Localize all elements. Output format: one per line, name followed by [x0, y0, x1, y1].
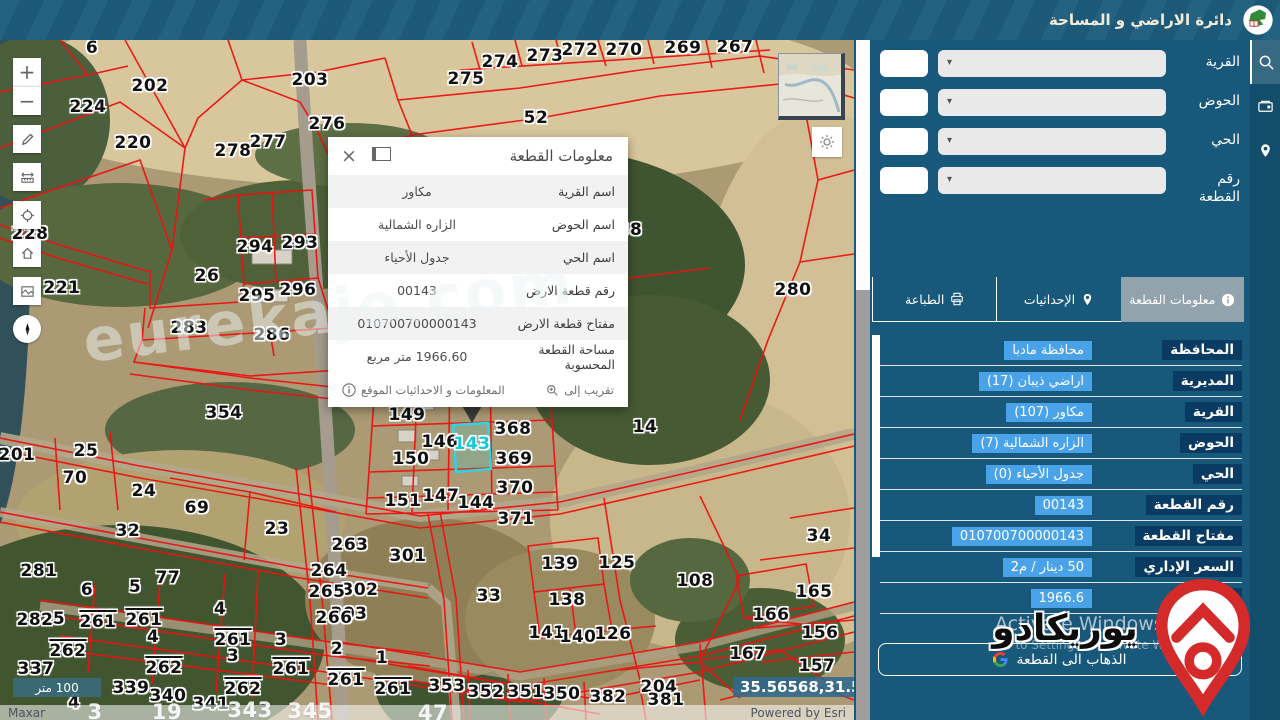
parcel-number-label: رقم القطعة [1176, 167, 1240, 206]
details-row: المساحة1966.6 [880, 583, 1242, 614]
zoom-to-icon [546, 384, 559, 397]
popup-row-value: 1966.60 متر مربع [328, 349, 506, 364]
parcel-info-popup: معلومات القطعة × اسم القريةمكاوراسم الحو… [328, 137, 628, 407]
basin-search-row: الحوض▾ [870, 89, 1250, 116]
tab-parcel-info[interactable]: معلومات القطعة [1121, 277, 1244, 322]
popup-footer: تقريب إلى المعلومات و الاحداثيات الموقع [328, 373, 628, 407]
map-toolbar: +− [13, 58, 41, 343]
popup-row: رقم قطعة الارض00143 [328, 274, 628, 307]
scale-bar: 100 متر [13, 678, 101, 697]
popup-row-label: مساحة القطعة المحسوبة [506, 342, 628, 372]
details-row: المحافظةمحافظة مادبا [880, 335, 1242, 366]
side-panel: القرية▾الحوض▾الحي▾رقم القطعة▾ معلومات ال… [870, 40, 1250, 720]
activate-windows-watermark: Activate Windows [995, 613, 1164, 635]
village-dropdown[interactable]: ▾ [938, 50, 1166, 77]
details-value: 50 دينار / م2 [1003, 558, 1092, 577]
details-row: مفتاح القطعة010700700000143 [880, 521, 1242, 552]
measure-button[interactable] [13, 163, 41, 191]
district-input[interactable] [880, 128, 928, 155]
details-label: القرية [1185, 402, 1242, 422]
details-label: الحي [1193, 464, 1242, 484]
popup-row: اسم الحوضالزاره الشمالية [328, 208, 628, 241]
details-row: الحوضالزاره الشمالية (7) [880, 428, 1242, 459]
details-value: محافظة مادبا [1004, 341, 1092, 360]
district-search-row: الحي▾ [870, 128, 1250, 155]
tab-label: الإحداثيات [1024, 292, 1075, 307]
popup-row-label: اسم القرية [506, 184, 628, 199]
details-value: 010700700000143 [952, 527, 1092, 546]
tab-label: معلومات القطعة [1129, 292, 1215, 307]
layers-card-icon[interactable] [1250, 84, 1280, 128]
zoom-in-button[interactable]: + [13, 58, 41, 86]
go-to-parcel-label: الذهاب الى القطعة [1016, 652, 1126, 668]
popup-row: مساحة القطعة المحسوبة1966.60 متر مربع [328, 340, 628, 373]
details-label: السعر الإداري [1135, 557, 1242, 577]
popup-row-label: مفتاح قطعة الارض [506, 316, 628, 331]
popup-row-value: 010700700000143 [328, 316, 506, 331]
district-dropdown[interactable]: ▾ [938, 128, 1166, 155]
details-row: المديريةاراضي ذيبان (17) [880, 366, 1242, 397]
zoom-to-label: تقريب إلى [564, 383, 614, 397]
activate-windows-watermark-line2: Go to Settings to activate Windows. [995, 638, 1210, 652]
popup-row-value: مكاور [328, 184, 506, 199]
attribution-esri: Powered by Esri [751, 706, 846, 720]
details-label: مفتاح القطعة [1135, 526, 1242, 546]
popup-row: اسم الحيجدول الأحياء [328, 241, 628, 274]
popup-attribute-table: اسم القريةمكاوراسم الحوضالزاره الشماليةا… [328, 175, 628, 373]
district-label: الحي [1176, 128, 1240, 150]
parcel-number-dropdown[interactable]: ▾ [938, 167, 1166, 194]
chevron-down-icon: ▾ [947, 57, 952, 68]
top-bar: دائرة الاراضي و المساحة [0, 0, 1280, 40]
details-value: جدول الأحياء (0) [986, 465, 1092, 484]
tab-print[interactable]: الطباعة [872, 277, 996, 322]
popup-row-value: 00143 [328, 283, 506, 298]
app-root: دائرة الاراضي و المساحة [0, 0, 1280, 720]
coordinates-icon [1081, 293, 1094, 306]
chevron-down-icon: ▾ [947, 96, 952, 107]
village-label: القرية [1176, 50, 1240, 72]
printer-icon [950, 292, 964, 306]
google-icon [993, 652, 1008, 667]
parcel-number-search-row: رقم القطعة▾ [870, 167, 1250, 206]
basin-dropdown[interactable]: ▾ [938, 89, 1166, 116]
locate-button[interactable] [13, 201, 41, 229]
details-row: الحيجدول الأحياء (0) [880, 459, 1242, 490]
chevron-down-icon: ▾ [947, 135, 952, 146]
details-label: المحافظة [1162, 340, 1242, 360]
home-button[interactable] [13, 239, 41, 267]
details-value: اراضي ذيبان (17) [979, 372, 1092, 391]
details-label: الحوض [1180, 433, 1242, 453]
details-label: رقم القطعة [1146, 495, 1242, 515]
info-coordinates-label: المعلومات و الاحداثيات الموقع [361, 383, 505, 397]
zoom-to-link[interactable]: تقريب إلى [546, 383, 614, 397]
info-coordinates-link[interactable]: المعلومات و الاحداثيات الموقع [342, 383, 505, 397]
info-icon [1221, 293, 1235, 307]
popup-title: معلومات القطعة [510, 147, 613, 165]
compass-button[interactable] [13, 315, 41, 343]
tab-label: الطباعة [905, 292, 944, 307]
parcel-search-form: القرية▾الحوض▾الحي▾رقم القطعة▾ [870, 50, 1250, 218]
details-value: 00143 [1035, 496, 1092, 515]
chevron-down-icon: ▾ [947, 174, 952, 185]
app-title: دائرة الاراضي و المساحة [1049, 11, 1232, 29]
popup-close-icon[interactable]: × [341, 147, 357, 165]
department-logo-icon [1242, 4, 1274, 36]
scrollbar-thumb[interactable] [856, 40, 870, 290]
search-tool-icon[interactable] [1250, 40, 1280, 84]
details-scrollbar[interactable] [872, 335, 880, 557]
basemap-button[interactable] [13, 277, 41, 305]
panel-tabs: معلومات القطعةالإحداثياتالطباعة [872, 277, 1244, 322]
details-row: القريةمكاور (107) [880, 397, 1242, 428]
popup-row-value: جدول الأحياء [328, 250, 506, 265]
zoom-out-button[interactable]: − [13, 86, 41, 115]
village-search-row: القرية▾ [870, 50, 1250, 77]
coordinates-readout: 35.56568,31.59776 [733, 677, 854, 697]
popup-row-value: الزاره الشمالية [328, 217, 506, 232]
popup-row-label: اسم الحي [506, 250, 628, 265]
popup-row-label: اسم الحوض [506, 217, 628, 232]
tab-coordinates[interactable]: الإحداثيات [996, 277, 1120, 322]
tool-strip [1250, 40, 1280, 720]
popup-row-label: رقم قطعة الارض [506, 283, 628, 298]
basin-label: الحوض [1176, 89, 1240, 111]
page-scrollbar[interactable] [856, 40, 870, 720]
basin-input[interactable] [880, 89, 928, 116]
details-label: المديرية [1173, 371, 1242, 391]
village-input[interactable] [880, 50, 928, 77]
details-value: مكاور (107) [1006, 403, 1092, 422]
overview-inset-map[interactable] [778, 53, 845, 120]
basemap-brightness-button[interactable] [812, 127, 842, 157]
draw-button[interactable] [13, 125, 41, 153]
details-value: الزاره الشمالية (7) [972, 434, 1092, 453]
location-pin-icon[interactable] [1250, 128, 1280, 172]
popup-dock-icon[interactable] [372, 147, 391, 161]
details-row: رقم القطعة00143 [880, 490, 1242, 521]
selected-parcel-highlight[interactable] [453, 423, 491, 472]
parcel-number-input[interactable] [880, 167, 928, 194]
parcel-details-table: المحافظةمحافظة مادباالمديريةاراضي ذيبان … [880, 335, 1242, 614]
map-attribution-bar: Maxar Powered by Esri [0, 705, 854, 720]
attribution-maxar: Maxar [8, 706, 45, 720]
details-row: السعر الإداري50 دينار / م2 [880, 552, 1242, 583]
info-icon [342, 383, 356, 397]
popup-row: اسم القريةمكاور [328, 175, 628, 208]
details-label: المساحة [1171, 588, 1242, 608]
details-value: 1966.6 [1031, 589, 1093, 608]
popup-header: معلومات القطعة × [328, 137, 628, 175]
popup-row: مفتاح قطعة الارض010700700000143 [328, 307, 628, 340]
